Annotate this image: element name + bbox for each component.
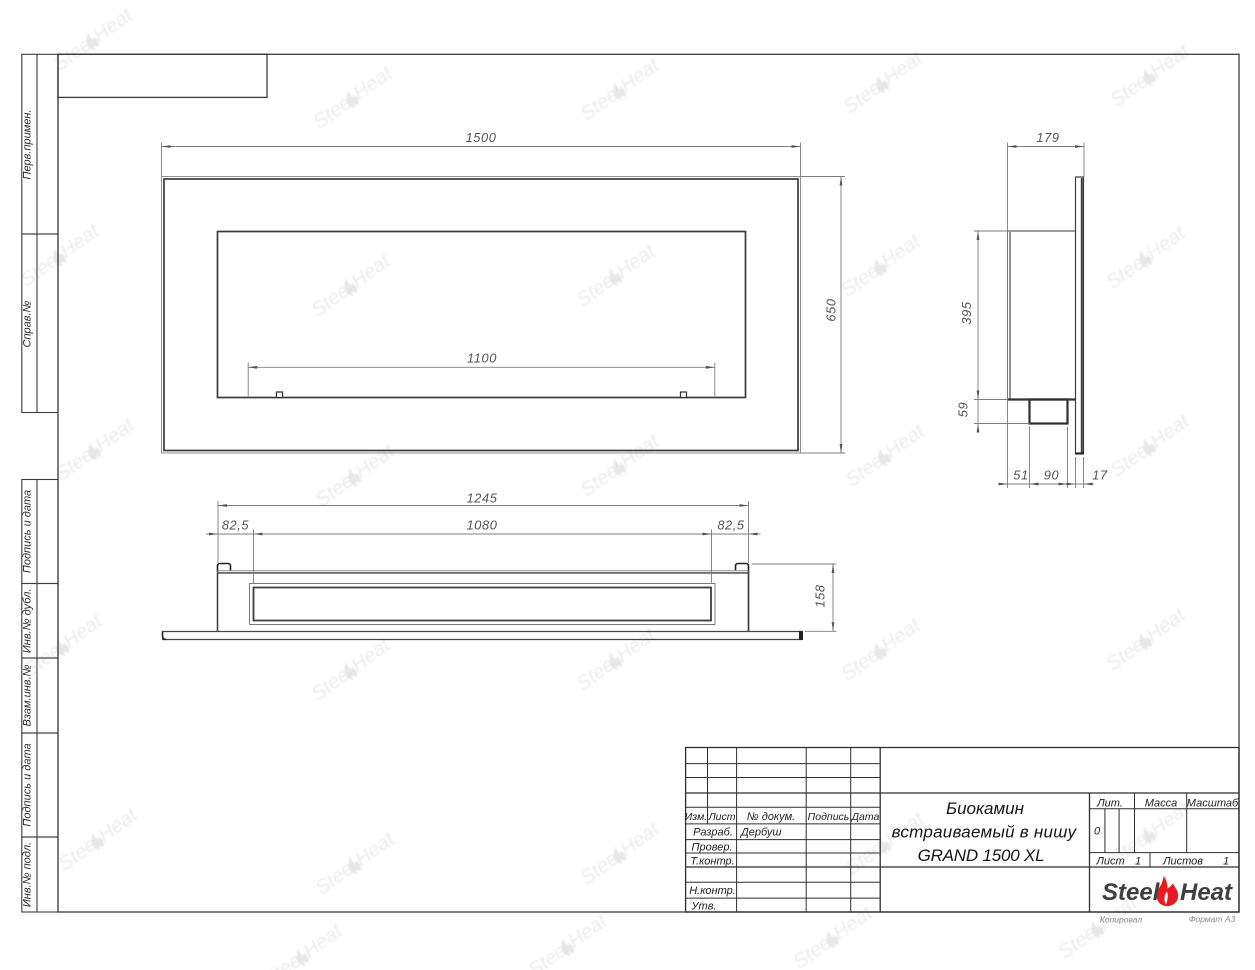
svg-text:1100: 1100	[467, 351, 497, 366]
svg-text:встраиваемый в нишу: встраиваемый в нишу	[892, 823, 1078, 842]
svg-text:82,5: 82,5	[717, 518, 745, 533]
svg-text:Лист: Лист	[707, 811, 735, 823]
svg-text:№ докум.: № докум.	[747, 811, 795, 823]
svg-text:Н.контр.: Н.контр.	[689, 885, 736, 897]
svg-text:Формат А3: Формат А3	[1189, 914, 1236, 924]
svg-text:Разраб.: Разраб.	[693, 827, 733, 839]
svg-text:Масштаб: Масштаб	[1187, 798, 1239, 810]
svg-text:Масса: Масса	[1145, 798, 1178, 810]
svg-text:Подпись: Подпись	[808, 811, 850, 823]
svg-text:Биокамин: Биокамин	[946, 799, 1025, 818]
svg-text:90: 90	[1044, 468, 1060, 483]
svg-text:Дербуш: Дербуш	[739, 827, 782, 839]
svg-text:17: 17	[1092, 468, 1108, 483]
svg-text:Steel: Steel	[1102, 879, 1161, 906]
svg-text:Лист: Лист	[1095, 856, 1124, 868]
svg-text:1245: 1245	[467, 491, 498, 506]
svg-text:0: 0	[1094, 826, 1101, 838]
svg-text:1080: 1080	[467, 518, 498, 533]
svg-text:650: 650	[824, 298, 839, 321]
svg-text:Инв.№ дубл.: Инв.№ дубл.	[22, 589, 34, 654]
svg-text:Листов: Листов	[1162, 856, 1203, 868]
svg-text:Подпись и дата: Подпись и дата	[22, 490, 34, 573]
svg-text:Утв.: Утв.	[691, 901, 717, 913]
svg-text:395: 395	[959, 301, 974, 324]
svg-text:Копировал: Копировал	[1100, 915, 1142, 925]
svg-text:Heat: Heat	[1180, 879, 1233, 906]
svg-text:Лит.: Лит.	[1096, 798, 1123, 810]
svg-text:51: 51	[1013, 468, 1028, 483]
svg-text:179: 179	[1036, 130, 1059, 145]
svg-text:Инв.№ подл.: Инв.№ подл.	[22, 842, 34, 907]
svg-text:158: 158	[813, 584, 828, 607]
svg-text:Подпись и дата: Подпись и дата	[22, 743, 34, 826]
svg-text:1: 1	[1135, 856, 1141, 868]
svg-text:82,5: 82,5	[222, 518, 250, 533]
svg-text:Провер.: Провер.	[692, 842, 733, 854]
svg-text:Справ.№: Справ.№	[22, 300, 34, 347]
svg-text:1500: 1500	[466, 130, 497, 145]
svg-text:GRAND 1500 XL: GRAND 1500 XL	[918, 846, 1045, 865]
svg-text:Т.контр.: Т.контр.	[690, 856, 734, 868]
svg-text:1: 1	[1223, 856, 1229, 868]
svg-text:59: 59	[956, 402, 971, 417]
svg-text:Взам.инв.№: Взам.инв.№	[22, 664, 34, 726]
svg-text:Перв.примен.: Перв.примен.	[22, 109, 34, 179]
svg-text:Изм.: Изм.	[685, 811, 707, 823]
svg-text:Дата: Дата	[851, 811, 880, 823]
